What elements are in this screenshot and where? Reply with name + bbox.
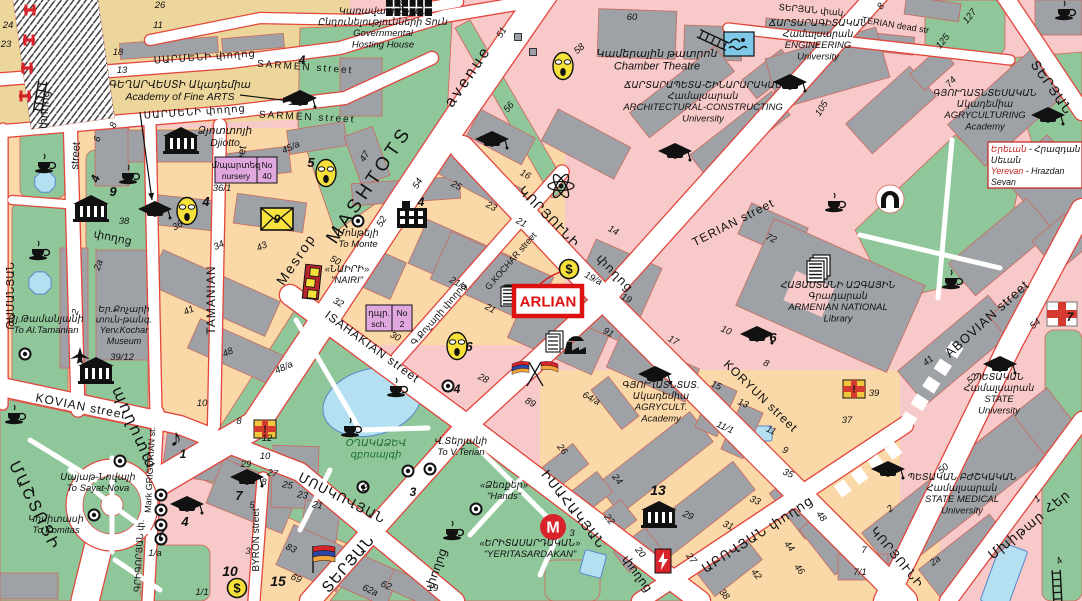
house-number: 37	[842, 415, 853, 426]
info-box: մ/պարտեզnurseryNo40	[212, 157, 277, 183]
currency-exchange-icon: $	[560, 260, 579, 279]
place-name: ARCHITECTURAL-CONSTRUCTING	[622, 102, 782, 113]
place-name: Ակադեմիա	[633, 391, 689, 402]
place-name: Academy	[640, 413, 682, 424]
place-name: տուն-թանգ.	[96, 315, 153, 325]
place-name: To Sayat-Nova	[67, 483, 130, 494]
monument-icon	[471, 504, 482, 515]
place-name: ENGINEERING	[785, 40, 852, 51]
dollar-sign: $	[233, 581, 241, 596]
place-name: University	[978, 405, 1021, 416]
street	[150, 122, 156, 415]
place-name: Ձյոտտոյի	[198, 125, 253, 137]
info-box-text: դպր.	[368, 308, 390, 318]
stop-square-icon	[530, 49, 537, 56]
monument-icon	[20, 349, 31, 360]
place-name: Համալսարան	[964, 383, 1034, 394]
house-number: 6	[465, 339, 473, 354]
house-number: 6	[769, 330, 777, 345]
place-name: "Hands"	[487, 491, 522, 502]
monument-icon	[156, 490, 167, 501]
place-name: AGRYCULT.	[634, 402, 687, 413]
place-name: Սայաթ-Նովայի	[60, 472, 135, 483]
route-text: Yerevan - Hrazdan	[991, 166, 1064, 176]
highlight-label: ARLIAN	[520, 294, 577, 311]
route-text: Sevan	[991, 177, 1016, 187]
place-name: ԳՅՈՒՂԱՏՆՏԵՍԱԿԱՆ	[933, 88, 1036, 99]
theater-mask-icon	[316, 160, 336, 187]
place-name: To Monte	[338, 239, 377, 250]
place-name: Ընդունելությունների Տուն	[318, 17, 448, 28]
place-name: Academy of Fine ARTS	[124, 91, 234, 103]
house-number: 1	[180, 447, 187, 461]
house-number: 10	[197, 398, 208, 409]
metro-m: M	[546, 520, 559, 537]
post-envelope-icon: 9	[261, 208, 293, 230]
house-number: 36/1	[213, 183, 232, 194]
house-number: 26	[154, 0, 166, 11]
place-name: Համալսարան	[668, 91, 738, 102]
place-name: ARMENIAN NATIONAL	[787, 302, 888, 313]
theater-mask-icon	[553, 53, 573, 80]
house-number: 11	[153, 20, 163, 31]
house-number: 15	[270, 573, 286, 589]
house-number: 8	[261, 477, 267, 488]
house-number: 12	[262, 433, 273, 444]
place-name: To Komitas	[32, 525, 79, 536]
house-number: 18	[113, 47, 124, 58]
place-name: STATE MEDICAL	[925, 494, 999, 505]
pond	[29, 272, 51, 294]
house-number: 13	[117, 65, 128, 76]
place-name: Ակադեմիա	[957, 99, 1013, 110]
pharmacy-icon: !	[843, 380, 865, 398]
monument-icon	[403, 466, 414, 477]
place-name: "NAIRI"	[331, 275, 364, 286]
place-name: ՃԱՐՏԱՐԱԳԻՏԱԿԱՆ	[768, 18, 867, 29]
park-path	[360, 428, 428, 430]
place-name: Կամերային թատրոն	[597, 48, 718, 60]
monument-icon	[156, 505, 167, 516]
place-name: Hosting House	[352, 39, 414, 50]
house-number: 60	[627, 12, 638, 23]
currency-exchange-icon: $	[228, 579, 247, 598]
place-name: To V.Terian	[437, 447, 484, 458]
house-number: 5	[307, 155, 315, 170]
house-number: 29	[240, 459, 252, 470]
monument-icon	[443, 381, 454, 392]
place-name: Եր.Քոչարի	[98, 304, 149, 314]
street-name: BYRON street	[251, 508, 262, 572]
house-number: 39	[869, 388, 880, 399]
house-number: 23	[0, 39, 12, 50]
building	[0, 573, 58, 599]
house-number: 7/1	[853, 567, 866, 578]
metro-station-icon: M	[540, 514, 566, 540]
place-name: «Ձեռքեր»	[480, 480, 528, 491]
place-name: «ԵՐԻՏԱՍԱՐԴԱԿԱՆ»	[479, 538, 580, 549]
place-name: STATE	[984, 394, 1014, 405]
place-name: Վ.Տերյանի	[435, 436, 487, 447]
house-number: 4	[180, 514, 189, 529]
house-number: 5	[249, 500, 255, 511]
house-number: 3	[569, 528, 575, 539]
place-name: ՀԱՅԱՍՏԱՆԻ ԱԶԳԱՅԻՆ	[781, 280, 896, 291]
info-box-text: No	[262, 160, 273, 170]
route-text: Երեւան - Հրազդան	[991, 144, 1081, 154]
pond	[35, 172, 55, 192]
house-number: 38	[119, 216, 130, 227]
place-name: զբոսայգի	[351, 450, 402, 461]
theater-mask-icon	[447, 333, 467, 360]
place-name: Academy	[964, 121, 1006, 132]
place-name: Chamber Theatre	[614, 61, 700, 73]
place-name: Կոմիտասի	[28, 514, 84, 525]
place-name: Yerv.Kochar	[100, 325, 149, 335]
cinema-filmstrip-icon	[302, 264, 321, 299]
house-number: 19	[428, 583, 439, 594]
info-box: դպր.sch.No2	[366, 305, 412, 331]
info-box-text: nursery	[222, 171, 251, 181]
place-name: University	[682, 113, 725, 124]
route-text: Սեւան	[991, 155, 1021, 165]
place-name: AGRYCULTURING	[943, 110, 1025, 121]
place-name: Համալսարան	[927, 483, 997, 494]
place-name: University	[797, 51, 840, 62]
stop-square-icon	[515, 34, 522, 41]
post-office-number: 9	[274, 212, 281, 226]
house-number: 39/12	[110, 352, 134, 363]
place-name: ԳԵՂԱՐՎԵՍՏԻ Ակադեմիա	[109, 79, 251, 91]
house-number: 10	[222, 563, 238, 579]
house-number: 1	[288, 97, 293, 108]
monument-icon	[89, 510, 100, 521]
place-name: University	[941, 505, 984, 516]
info-box-text: 2	[400, 319, 405, 329]
pharmacy-mark: !	[852, 385, 855, 396]
place-name: Կառավարության	[339, 6, 427, 17]
info-box-text: No	[397, 308, 408, 318]
house-number: 4	[417, 195, 425, 209]
house-number: 13	[650, 482, 666, 498]
house-number: 4	[201, 194, 210, 209]
place-name: Այ.Թամանյանի	[8, 314, 83, 325]
map-canvas: 9$$M!!♪ ՍԱՐՄԵՆԻ փողոցSARMEN streetՍԱՐՄԵՆ…	[0, 0, 1082, 601]
place-name: Համալսարան	[783, 29, 853, 40]
place-name: Գրադարան	[808, 291, 867, 302]
place-name: Մոնթեյի	[337, 228, 378, 239]
street-name: street	[69, 142, 83, 170]
house-number: 2	[361, 482, 368, 494]
place-name: Museum	[107, 336, 142, 346]
house-number: 3	[245, 546, 251, 557]
house-number: 4	[298, 53, 306, 67]
house-number: 3	[410, 485, 417, 499]
house-number: 9	[109, 184, 117, 199]
house-number: 1/1	[195, 587, 208, 598]
house-number: 10	[260, 451, 271, 462]
street-name: TAMANIAN	[204, 265, 218, 334]
place-name: To Al.Tamanian	[14, 325, 79, 336]
info-box-text: 40	[262, 171, 272, 181]
house-number: 8	[236, 416, 242, 427]
house-number: 4	[453, 382, 461, 396]
house-number: 7	[861, 545, 867, 556]
info-box-text: sch.	[371, 319, 387, 329]
place-name: Djiotto	[210, 137, 240, 149]
place-name: ԳՅՈՒՂԱՏՆՏՍՏ.	[622, 380, 699, 391]
route-box: Երեւան - ՀրազդանՍեւանYerevan - HrazdanSe…	[988, 142, 1082, 188]
place-name: «ՆԱԻՐԻ»	[325, 264, 370, 275]
park-monument-icon	[876, 185, 904, 213]
place-name: Governmental	[353, 28, 414, 39]
place-name: "YERITASARDAKAN"	[484, 549, 577, 560]
place-name: Library	[823, 313, 853, 324]
monument-icon	[425, 464, 436, 475]
swimming-pool-icon	[724, 32, 754, 56]
place-name: ՕՂԱԿԱՁԵՎ	[346, 438, 407, 449]
monument-icon	[115, 456, 126, 467]
library-books-icon	[807, 255, 830, 282]
house-number: 1/a	[148, 548, 161, 559]
power-station-icon	[655, 549, 671, 573]
house-number: 24	[2, 20, 14, 31]
info-box-text: մ/պարտեզ	[212, 160, 261, 170]
place-name: ՊԵՏԱԿԱՆ	[974, 372, 1024, 383]
dollar-sign: $	[565, 262, 573, 277]
place-name: ՃԱՐՏԱՐԱՊԵՏԱ-ՇԻՆԱՐԱՐԱԿԱՆ	[623, 80, 782, 91]
house-number: 21	[310, 499, 323, 512]
house-number: 7	[235, 488, 243, 503]
place-name: ՊԵՏԱԿԱՆ ԲԺՇԿԱԿԱՆ	[907, 472, 1016, 483]
yerevan-city-map[interactable]: 9$$M!!♪ ՍԱՐՄԵՆԻ փողոցSARMEN streetՍԱՐՄԵՆ…	[0, 0, 1082, 601]
